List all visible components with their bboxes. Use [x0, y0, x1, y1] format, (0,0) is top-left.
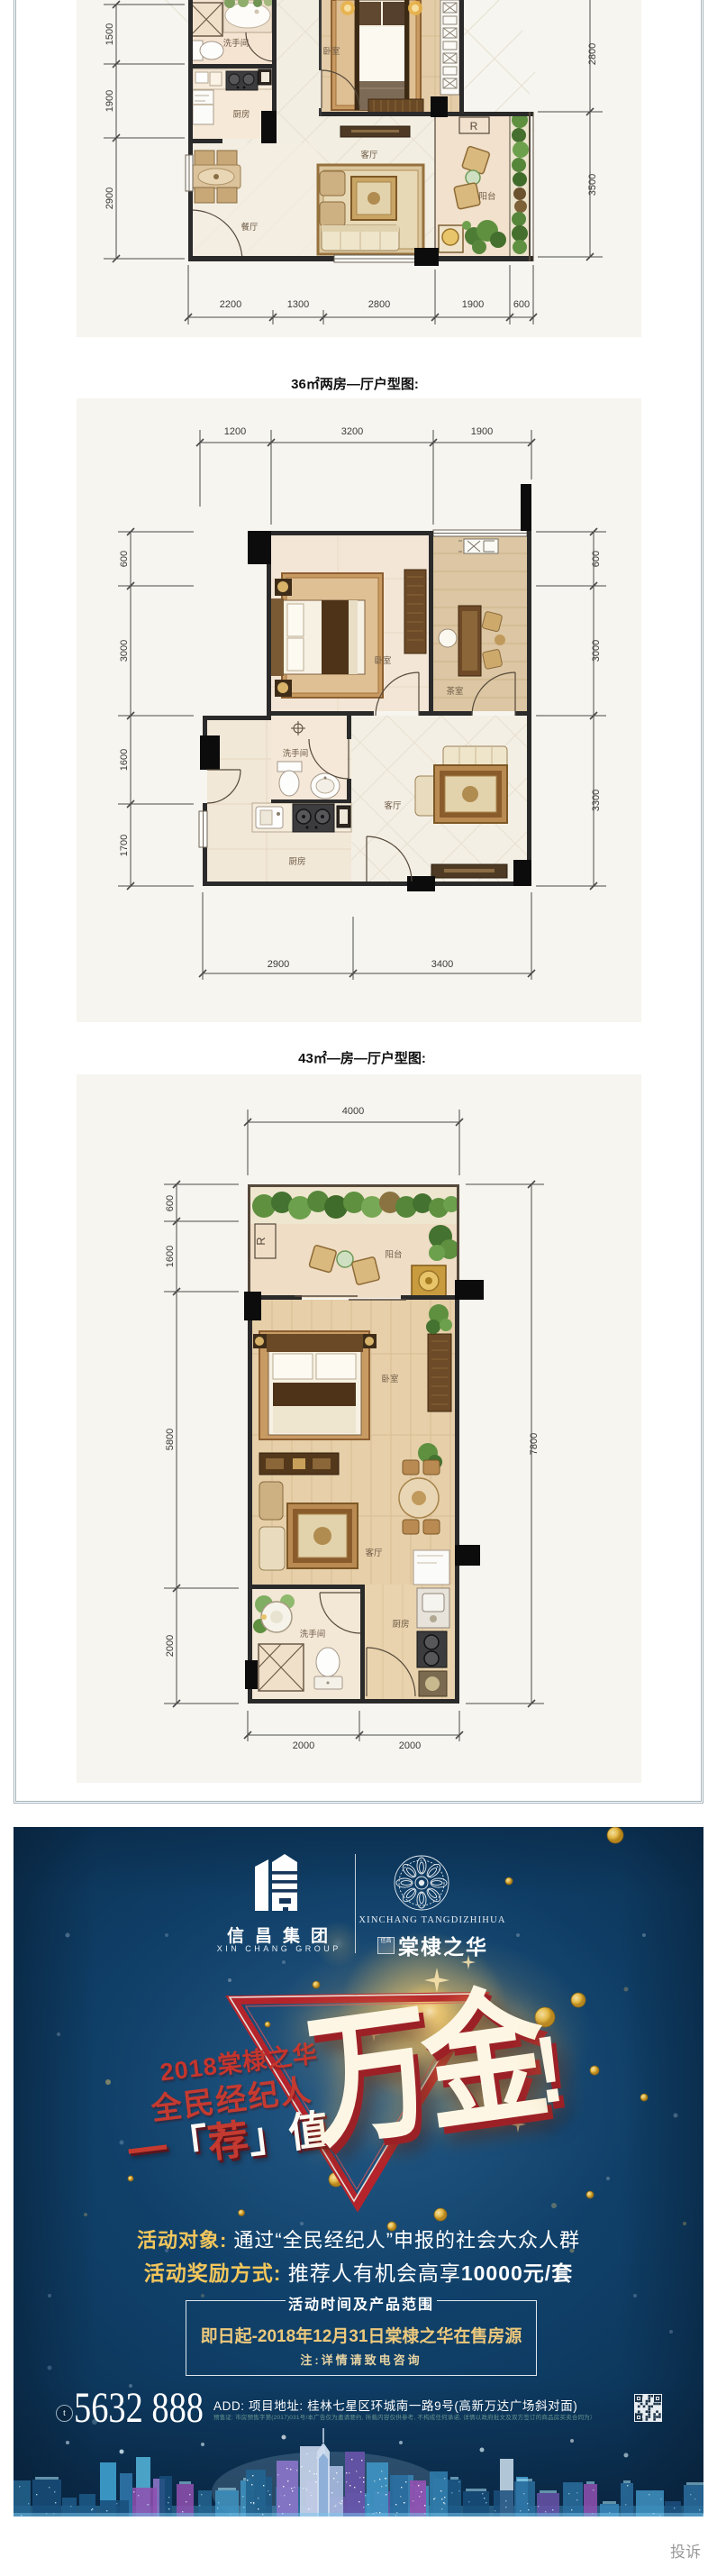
svg-text:卧室: 卧室	[322, 46, 340, 57]
svg-text:600: 600	[513, 299, 530, 310]
svg-text:3500: 3500	[587, 174, 598, 196]
svg-text:2800: 2800	[368, 299, 390, 310]
svg-text:2800: 2800	[587, 43, 598, 65]
svg-text:4000: 4000	[342, 1106, 364, 1117]
svg-text:卧室: 卧室	[374, 655, 391, 666]
svg-text:1300: 1300	[287, 299, 309, 310]
svg-text:1200: 1200	[224, 426, 246, 437]
svg-text:1600: 1600	[165, 1246, 176, 1267]
svg-text:洗手间: 洗手间	[223, 38, 250, 49]
svg-text:2200: 2200	[220, 299, 241, 310]
svg-text:2900: 2900	[268, 959, 289, 970]
svg-text:阳台: 阳台	[478, 191, 495, 202]
svg-text:3400: 3400	[431, 959, 453, 970]
svg-text:2000: 2000	[293, 1740, 314, 1751]
svg-text:卧室: 卧室	[381, 1374, 398, 1384]
svg-text:3000: 3000	[119, 640, 130, 662]
svg-text:600: 600	[165, 1195, 176, 1211]
svg-text:1500: 1500	[104, 23, 115, 45]
svg-text:1900: 1900	[471, 426, 493, 437]
svg-text:R: R	[254, 1237, 268, 1245]
svg-text:1600: 1600	[119, 749, 130, 771]
svg-text:R: R	[470, 120, 478, 132]
svg-text:客厅: 客厅	[360, 150, 378, 160]
svg-text:2900: 2900	[104, 187, 115, 209]
svg-text:2000: 2000	[399, 1740, 421, 1751]
svg-text:阳台: 阳台	[385, 1249, 402, 1260]
svg-text:厨房: 厨房	[232, 109, 250, 120]
svg-text:1900: 1900	[462, 299, 484, 310]
svg-text:1900: 1900	[104, 90, 115, 112]
svg-text:600: 600	[591, 551, 602, 567]
svg-text:洗手间: 洗手间	[283, 748, 309, 759]
svg-text:3300: 3300	[591, 790, 602, 811]
svg-text:1700: 1700	[119, 835, 130, 856]
svg-text:3000: 3000	[591, 640, 602, 662]
svg-text:客厅: 客厅	[384, 800, 402, 811]
svg-text:2000: 2000	[165, 1635, 176, 1657]
svg-text:5800: 5800	[165, 1429, 176, 1450]
svg-text:餐厅: 餐厅	[241, 222, 259, 233]
svg-text:3200: 3200	[341, 426, 363, 437]
svg-text:茶室: 茶室	[446, 686, 463, 697]
svg-text:600: 600	[119, 551, 130, 567]
svg-text:7800: 7800	[529, 1433, 540, 1455]
svg-text:厨房: 厨房	[288, 856, 305, 867]
svg-text:洗手间: 洗手间	[300, 1629, 326, 1640]
svg-text:厨房: 厨房	[392, 1619, 409, 1630]
svg-text:客厅: 客厅	[365, 1548, 383, 1558]
